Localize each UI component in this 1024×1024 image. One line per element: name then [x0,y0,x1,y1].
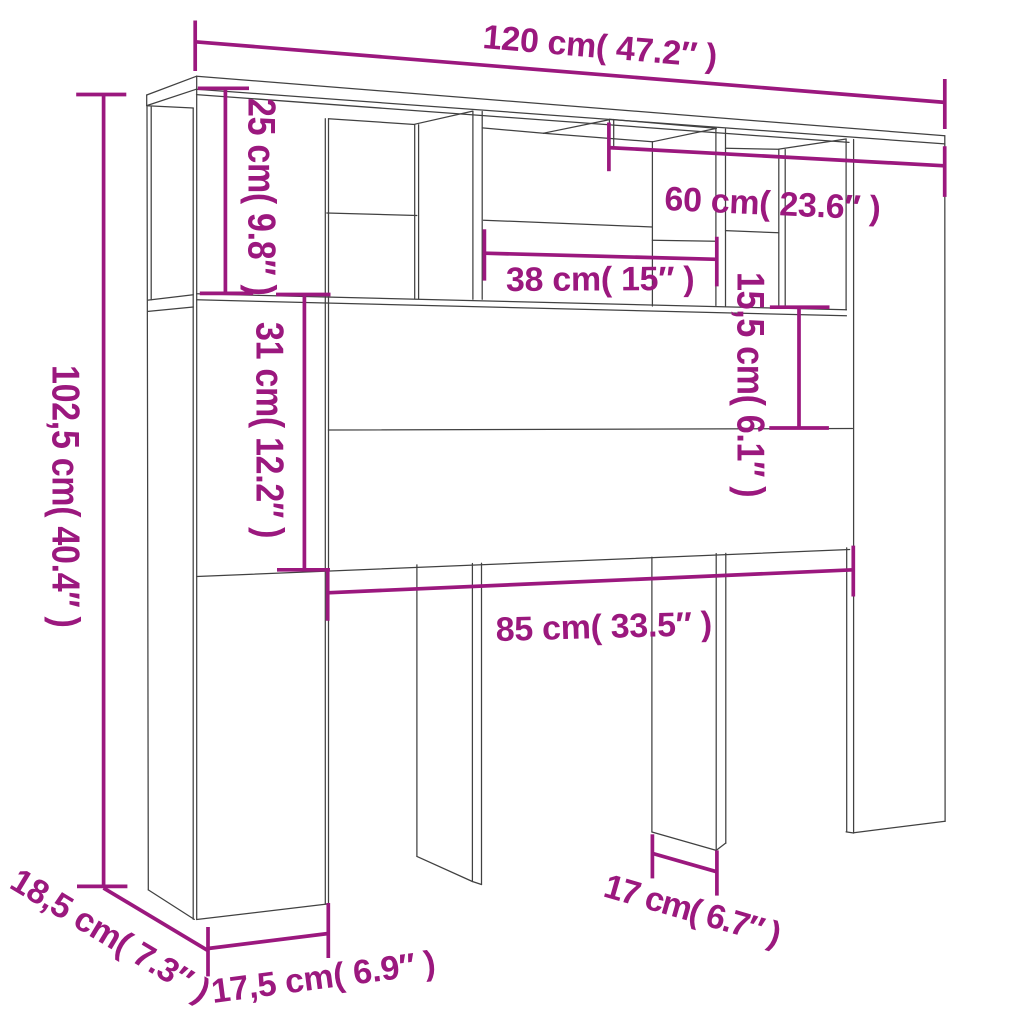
svg-text:25 cm( 9.8″ ): 25 cm( 9.8″ ) [240,98,284,296]
svg-text:38 cm( 15″ ): 38 cm( 15″ ) [506,260,695,299]
svg-text:31 cm( 12.2″ ): 31 cm( 12.2″ ) [248,322,292,538]
svg-text:15,5 cm( 6.1″ ): 15,5 cm( 6.1″ ) [729,272,773,497]
svg-text:85 cm( 33.5″ ): 85 cm( 33.5″ ) [495,605,712,649]
svg-text:102,5 cm( 40.4″ ): 102,5 cm( 40.4″ ) [44,365,88,627]
